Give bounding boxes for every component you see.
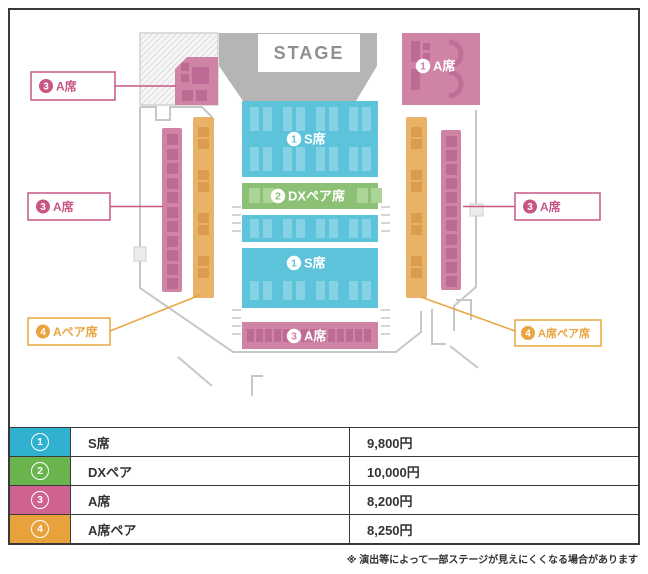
price-row-a-pair: 4 A席ペア 8,250円 [10, 514, 638, 543]
callout-right-a-pair: 4 A席ペア席 [515, 320, 601, 346]
stage-label: STAGE [274, 43, 345, 63]
seat-marks-strip-a-right [446, 136, 457, 287]
seat-map: STAGE 1 A席 [10, 10, 638, 427]
seat-type-name: S席 [71, 428, 350, 456]
seat-type-name: DXペア [71, 457, 350, 485]
seat-type-name: A席 [71, 486, 350, 514]
seat-price: 8,200円 [350, 486, 638, 514]
section-label: DXペア席 [288, 189, 345, 204]
callout-stage-left-a: 3 A席 [31, 72, 115, 100]
number-badge-digit: 4 [40, 327, 46, 338]
callout-label: A席ペア席 [538, 326, 590, 340]
callout-label: A席 [56, 79, 77, 94]
price-row-color-cell: 3 [10, 486, 71, 514]
number-badge-digit: 3 [40, 202, 46, 213]
circled-number: 3 [31, 491, 49, 509]
number-badge-digit: 1 [291, 134, 297, 146]
number-badge-digit: 1 [420, 61, 426, 73]
seat-price: 10,000円 [350, 457, 638, 485]
number-badge-digit: 3 [527, 202, 533, 213]
seat-marks-strip-a-left [167, 134, 178, 289]
seating-chart-page: STAGE 1 A席 [0, 0, 648, 574]
callout-left-a-pair: 4 Aペア席 [28, 318, 110, 345]
callout-label: A席 [53, 199, 74, 214]
section-a-top-right-label: 1 A席 [416, 59, 456, 74]
price-row-color-cell: 1 [10, 428, 71, 456]
section-s-upper-label: 1 S席 [287, 132, 326, 147]
price-row-color-cell: 4 [10, 515, 71, 543]
seat-price: 8,250円 [350, 515, 638, 543]
price-row-dx: 2 DXペア 10,000円 [10, 456, 638, 485]
number-badge-digit: 4 [525, 329, 531, 340]
leader-left-a-pair [110, 295, 200, 331]
number-badge-digit: 3 [291, 331, 297, 343]
section-label: A席 [433, 59, 455, 74]
price-row-color-cell: 2 [10, 457, 71, 485]
section-label: S席 [304, 132, 326, 147]
chart-frame: STAGE 1 A席 [8, 8, 640, 545]
number-badge-digit: 1 [291, 258, 297, 270]
section-label: A席 [304, 329, 326, 344]
disclaimer-note: ※ 演出等によって一部ステージが見えにくくなる場合があります [347, 551, 638, 566]
seat-price: 9,800円 [350, 428, 638, 456]
number-badge-digit: 2 [275, 191, 281, 203]
price-row-s: 1 S席 9,800円 [10, 427, 638, 456]
price-table: 1 S席 9,800円 2 DXペア 10,000円 3 A席 8,200円 [10, 427, 638, 543]
circled-number: 4 [31, 520, 49, 538]
section-s-lower-label: 1 S席 [287, 256, 326, 271]
leader-right-a-pair [421, 297, 515, 331]
number-badge-digit: 3 [43, 82, 49, 93]
callout-left-a: 3 A席 [28, 193, 110, 220]
callout-right-a: 3 A席 [515, 193, 600, 220]
seat-type-name: A席ペア [71, 515, 350, 543]
callout-label: Aペア席 [53, 324, 98, 339]
wall-pillar-left [134, 247, 146, 261]
section-a-bottom-label: 3 A席 [287, 329, 327, 344]
callout-label: A席 [540, 199, 561, 214]
circled-number: 2 [31, 462, 49, 480]
section-dx-pair-label: 2 DXペア席 [271, 189, 345, 204]
price-row-a: 3 A席 8,200円 [10, 485, 638, 514]
section-label: S席 [304, 256, 326, 271]
circled-number: 1 [31, 433, 49, 451]
